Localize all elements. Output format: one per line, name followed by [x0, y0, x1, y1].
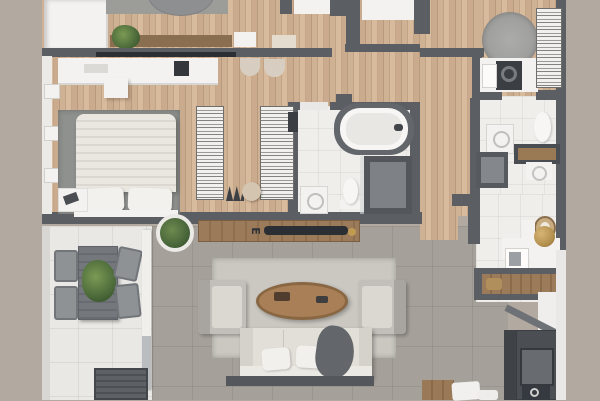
bathtub-faucet [394, 124, 403, 131]
armchair-right-cushion [362, 286, 392, 328]
sofa-pillow-1 [261, 347, 291, 371]
toilet-main-bowl [343, 178, 358, 204]
shower-ensuite-tray [481, 157, 504, 183]
wall-tv-bar [96, 52, 236, 57]
top-shelf-box [234, 32, 256, 47]
wall-stub-c [346, 0, 360, 44]
bedroom-dresser [58, 58, 218, 85]
sink-ensuite-basin [493, 131, 510, 148]
dining-table-partial [422, 380, 454, 400]
balcony-chair-4 [114, 283, 141, 319]
wall-stub-d [414, 0, 430, 34]
shower-main-tray [370, 162, 406, 208]
entry-kettle-detail [509, 252, 521, 266]
wall-bathC-chimney [336, 94, 352, 104]
coffee-table-tray [274, 292, 290, 301]
kitchen-oven-dial [530, 388, 539, 397]
dresser-decor-dark [174, 61, 189, 76]
washer-door [501, 66, 517, 82]
outside-margin-left [0, 0, 42, 400]
wall-entry-corner-v [468, 194, 480, 244]
living-planter [156, 214, 194, 252]
outside-margin-right [566, 0, 600, 400]
armchair-left-cushion [212, 286, 242, 328]
coffee-table [256, 282, 348, 320]
shelf-plant [112, 25, 140, 49]
wardrobe-cabinet-top-left [44, 0, 108, 50]
dining-chair-white-2 [478, 390, 498, 400]
ensuite-vanity-basin [532, 166, 547, 181]
bed-pillow-2 [128, 187, 173, 213]
closet-stool [242, 182, 261, 201]
bed-headboard [74, 210, 178, 217]
toilet-ensuite [534, 112, 551, 142]
coffee-table-decor [316, 296, 328, 303]
armchair-right-back [394, 280, 406, 334]
sink-main-basin [307, 193, 324, 210]
entry-bench-decor [486, 278, 502, 290]
laundry-sink [482, 64, 497, 88]
wall-stub-b [330, 0, 346, 16]
bathC-door-gap [300, 102, 328, 110]
kitchen-island [520, 348, 554, 386]
wall-top-mid [345, 44, 420, 52]
balcony-chair-3 [54, 286, 78, 320]
tv-soundbar [264, 226, 348, 235]
dresser-tray [84, 64, 108, 73]
dining-chair-white-1 [451, 381, 480, 401]
shower-glass [360, 156, 364, 214]
ensuite-shelf-wood [518, 148, 556, 160]
console-brass-dot [348, 228, 356, 236]
bedroom-nightstand [104, 78, 128, 98]
balcony-outer-wall [42, 226, 50, 400]
entry-brass-bowl [534, 226, 555, 247]
floor-plan: E [0, 0, 600, 400]
bed [76, 114, 176, 192]
media-wall-bar [226, 376, 374, 386]
armchair-left-back [198, 280, 210, 334]
wall-stub-a [280, 0, 292, 14]
hall-passage-floor [420, 214, 458, 240]
ac-unit [94, 368, 148, 400]
balcony-chair-1 [54, 250, 78, 282]
window-tab-1 [44, 84, 60, 99]
closet-rack-left [196, 106, 224, 200]
wall-bathR-top-b [536, 90, 562, 100]
closet-rack-foyer [536, 8, 562, 88]
console-letter-decor: E [246, 223, 262, 239]
bathC-niche [288, 112, 298, 132]
balcony-table-plant [82, 260, 116, 302]
top-room-fixture-b [362, 0, 414, 20]
